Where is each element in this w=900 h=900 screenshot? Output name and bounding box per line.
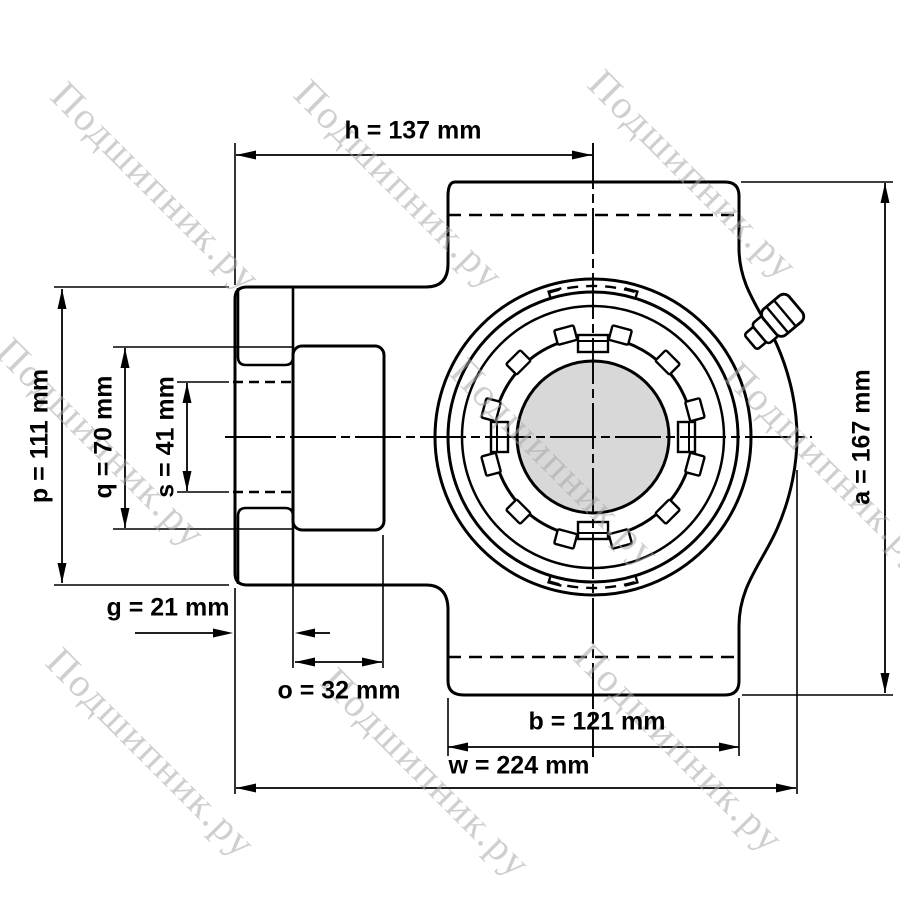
dimension-a [881,183,890,693]
dimension-label-w: w = 224 mm [448,752,589,781]
dimension-label-g: g = 21 mm [107,594,230,623]
dimension-label-s: s = 41 mm [152,376,181,498]
dimension-o [295,658,382,667]
dimension-s [183,383,192,491]
dimension-label-p: p = 111 mm [26,369,55,503]
dimension-label-q: q = 70 mm [90,376,119,499]
dimension-label-a: a = 167 mm [848,369,877,505]
dimension-w [236,784,796,793]
dimension-label-o: o = 32 mm [278,677,401,706]
technical-drawing-canvas: Подшипник.ру Подшипник.ру Подшипник.ру П… [0,0,900,900]
dimension-q [121,348,130,528]
dimension-g [135,629,330,638]
dimension-label-h: h = 137 mm [345,117,482,146]
threaded-boss [293,346,384,530]
dimension-label-b: b = 121 mm [529,708,666,737]
dimension-p [58,289,67,583]
dimension-h [236,151,592,160]
